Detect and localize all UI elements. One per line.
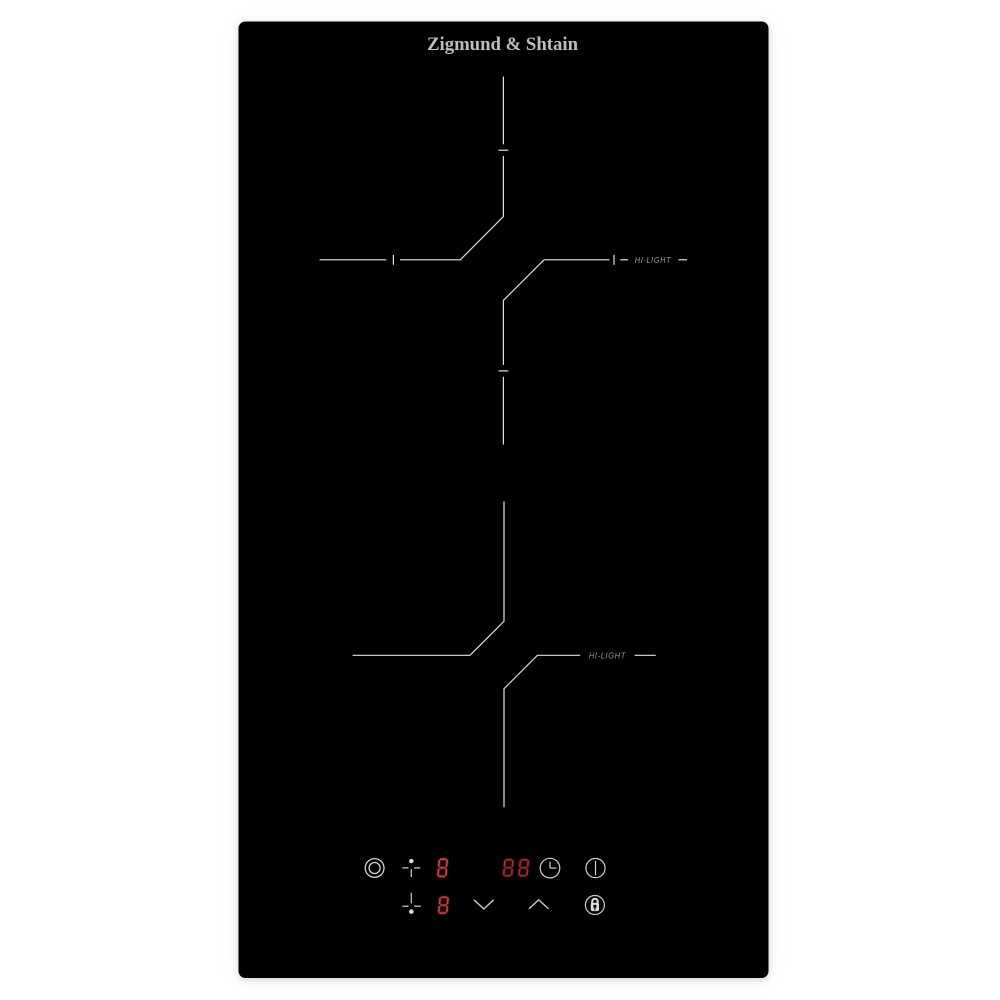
svg-text:HI-LIGHT: HI-LIGHT xyxy=(589,650,626,660)
svg-text:Zigmund & Shtain: Zigmund & Shtain xyxy=(427,34,578,55)
svg-text:HI-LIGHT: HI-LIGHT xyxy=(635,255,672,265)
